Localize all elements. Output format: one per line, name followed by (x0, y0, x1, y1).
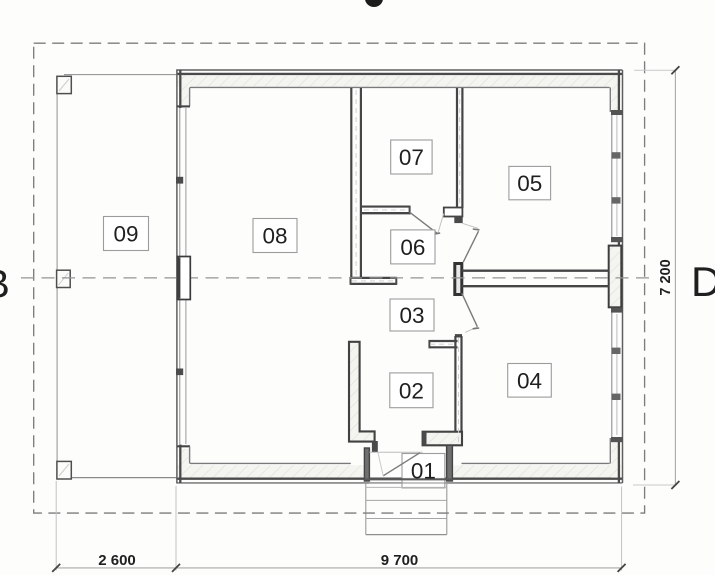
svg-text:D: D (691, 258, 715, 305)
svg-text:02: 02 (399, 378, 424, 403)
svg-text:B: B (0, 263, 10, 307)
svg-text:9 700: 9 700 (381, 552, 419, 569)
svg-text:04: 04 (517, 368, 542, 393)
svg-text:06: 06 (400, 235, 425, 260)
svg-text:08: 08 (262, 224, 287, 249)
svg-text:05: 05 (517, 171, 542, 196)
svg-text:01: 01 (411, 459, 436, 484)
svg-text:7 200: 7 200 (658, 259, 674, 295)
svg-text:03: 03 (399, 303, 424, 328)
svg-text:2 600: 2 600 (98, 552, 136, 569)
svg-text:07: 07 (399, 145, 424, 170)
svg-text:09: 09 (113, 222, 138, 247)
